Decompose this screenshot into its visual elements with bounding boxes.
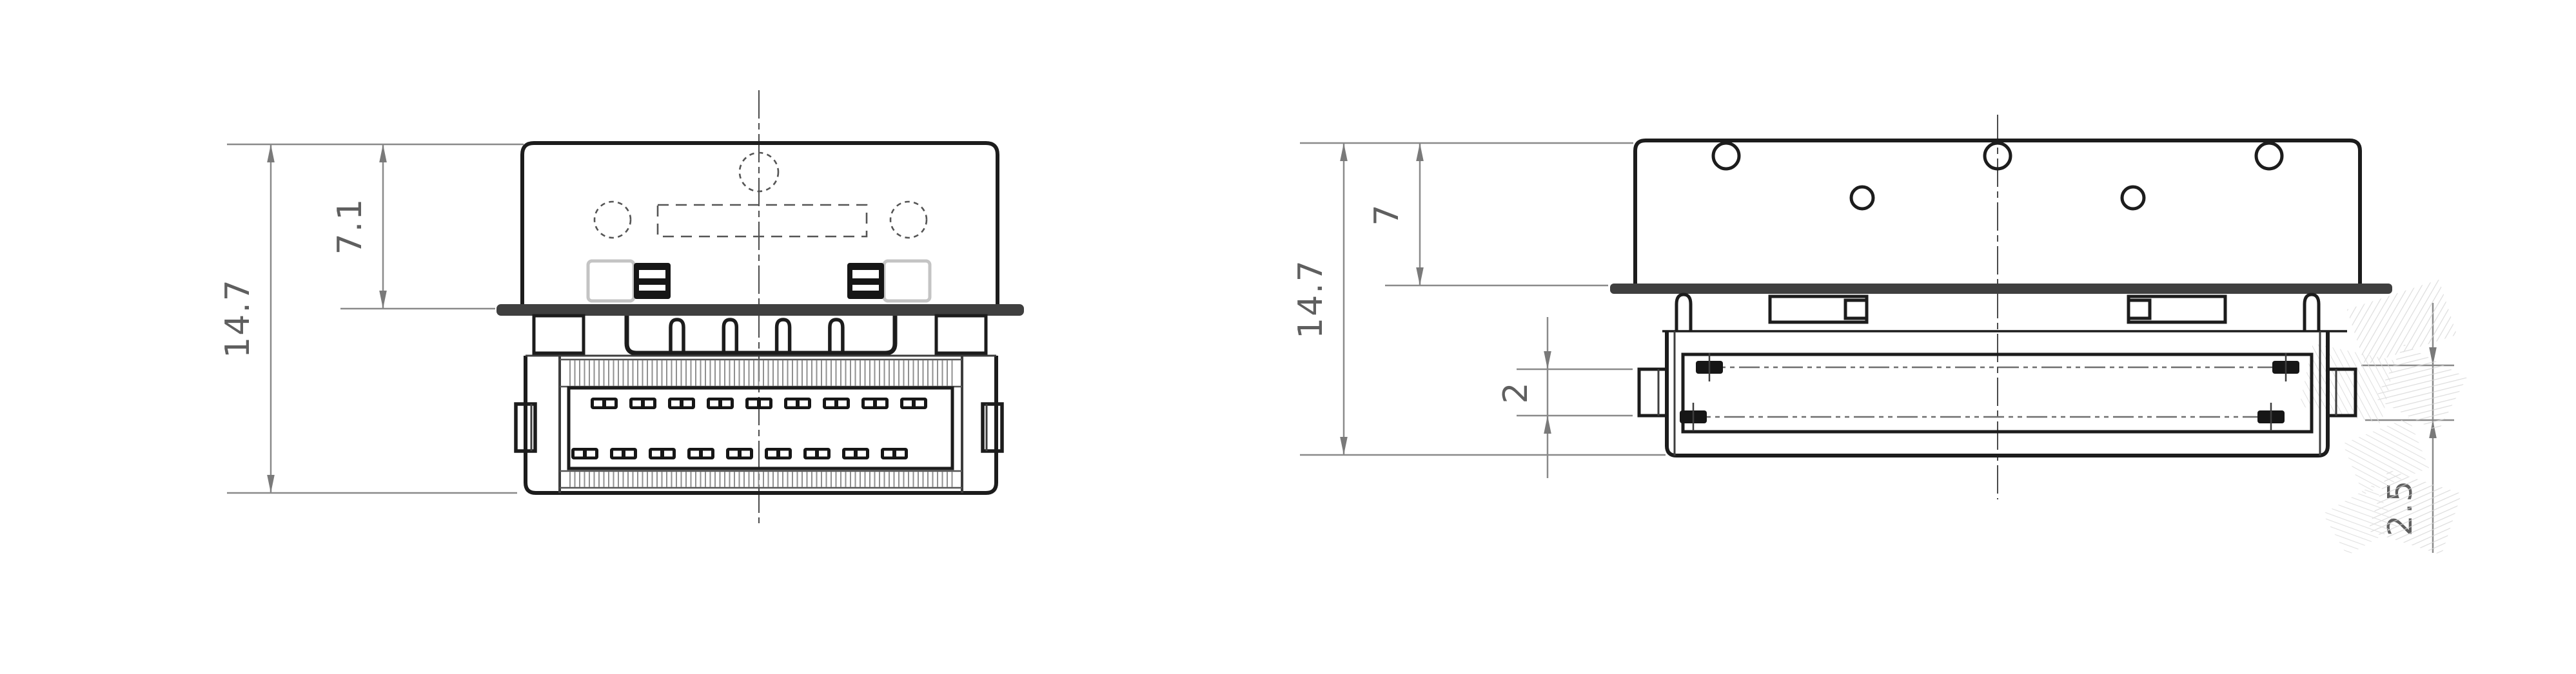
front-hatch-band-top (560, 360, 962, 387)
dimension-arrow (1416, 143, 1424, 161)
contact-pad-slot (587, 451, 595, 457)
contact-pad-slot (838, 401, 847, 407)
contact-pad-slot (703, 451, 711, 457)
front-flange-bar (497, 304, 1024, 316)
contact-pad-slot (652, 451, 660, 457)
contact-pad-slot (884, 451, 892, 457)
latch-slot (639, 285, 665, 291)
front-hatch-band-bottom (560, 471, 962, 488)
contact-pad-slot (845, 451, 854, 457)
contact-pad-slot (826, 401, 834, 407)
contact-pad-slot (819, 451, 827, 457)
contact-pad-slot (768, 451, 776, 457)
mount-hole (2122, 187, 2144, 209)
contact-pad (591, 398, 618, 409)
front-contact-pads-top-row (591, 398, 927, 409)
hidden-boss-circle-right (890, 202, 927, 238)
bottom-hook-left (1676, 294, 1691, 331)
contact-pad-slot (633, 401, 641, 407)
hidden-cavity-rect (658, 205, 867, 236)
dimension-arrow (379, 144, 387, 162)
contact-pad-slot (671, 401, 680, 407)
bottom-flange-bar (1610, 284, 2392, 294)
hidden-boss-circle-left (595, 202, 631, 238)
contact-pad-slot (903, 401, 912, 407)
dimension-arrow (267, 475, 275, 493)
bottom-solder-tab-left (1639, 369, 1667, 416)
contact-pad-slot (749, 401, 757, 407)
bottom-hook-right (2305, 294, 2319, 331)
contact-pad-slot (742, 451, 750, 457)
latch-contact (847, 263, 884, 299)
bottom-dim-overall-label: 14.7 (1292, 259, 1330, 339)
contact-pad-slot (683, 401, 692, 407)
front-latch-left (588, 261, 671, 301)
contact-pad-slot (761, 401, 769, 407)
contact-pad (629, 398, 656, 409)
front-contact-pads-bottom-row (571, 448, 908, 459)
front-dim-overall-label: 14.7 (219, 278, 257, 358)
mount-hole (1851, 187, 1873, 209)
contact-pad-slot (800, 401, 808, 407)
pin-notch (777, 320, 790, 354)
pin-notch (671, 320, 683, 354)
contact-pad-slot (807, 451, 815, 457)
contact-pad-slot (613, 451, 622, 457)
contact-pad-slot (858, 451, 866, 457)
contact-pad-slot (606, 401, 615, 407)
contact-pad-slot (594, 401, 602, 407)
dimension-arrow (1544, 351, 1551, 369)
dimension-arrow (267, 144, 275, 162)
bottom-dim-tab-label: 2 (1497, 381, 1535, 403)
contact-pad (784, 398, 811, 409)
latch-slot (639, 270, 665, 278)
engineering-drawing-canvas: 14.7 7.1 (0, 0, 2576, 674)
contact-pad-slot (691, 451, 699, 457)
contact-pad (687, 448, 714, 459)
front-solder-tab-right (983, 404, 1002, 451)
dimension-arrow (1340, 437, 1348, 455)
contact-pad (823, 398, 850, 409)
contact-pad (571, 448, 598, 459)
contact-pad (649, 448, 676, 459)
watermark-hatch (2299, 280, 2467, 555)
contact-pad-slot (645, 401, 653, 407)
pin-notch (830, 320, 843, 354)
front-pin-tray (627, 316, 895, 353)
contact-pad (842, 448, 869, 459)
contact-pad (668, 398, 695, 409)
contact-pad-slot (787, 401, 796, 407)
dimension-arrow (1416, 267, 1424, 285)
contact-pad-slot (625, 451, 634, 457)
contact-pad (707, 398, 734, 409)
latch-slot (852, 270, 879, 278)
contact-pad (745, 398, 772, 409)
bottom-slot-right (2129, 296, 2225, 322)
mount-hole (2256, 143, 2282, 169)
contact-pad-slot (865, 401, 873, 407)
dimension-arrow (1544, 416, 1551, 434)
contact-pad-slot (877, 401, 885, 407)
contact-pad-slot (729, 451, 738, 457)
contact-pad-slot (664, 451, 673, 457)
bottom-dim-upper-label: 7 (1368, 203, 1406, 226)
front-pin-notches (671, 320, 843, 354)
front-view: 14.7 7.1 (219, 90, 1024, 523)
contact-pad-slot (722, 401, 731, 407)
contact-pad (610, 448, 637, 459)
contact-pad-slot (780, 451, 789, 457)
contact-pad (765, 448, 792, 459)
front-view-dimensions: 14.7 7.1 (219, 144, 524, 493)
pin-notch (723, 320, 736, 354)
contact-pad (861, 398, 889, 409)
latch-housing (884, 261, 930, 301)
front-dim-upper-label: 7.1 (331, 198, 369, 255)
bottom-view-dimensions: 14.7 7 2 2.5 (1292, 143, 2454, 553)
contact-pad (726, 448, 753, 459)
latch-contact (634, 263, 671, 299)
bottom-view: 14.7 7 2 2.5 (1292, 115, 2467, 555)
contact-pad-slot (916, 401, 924, 407)
bottom-contact-pads (1680, 353, 2299, 431)
front-latch-right (847, 261, 930, 301)
bottom-slot-left (1770, 296, 1867, 322)
contact-pad-slot (710, 401, 718, 407)
front-lower-body (526, 356, 996, 493)
latch-housing (588, 261, 634, 301)
latch-slot (852, 285, 879, 291)
dimension-arrow (379, 291, 387, 309)
contact-pad (881, 448, 908, 459)
contact-pad (900, 398, 927, 409)
contact-pad-slot (896, 451, 905, 457)
front-end-block-left (534, 316, 584, 353)
dimension-arrow (1340, 143, 1348, 161)
contact-pad (803, 448, 831, 459)
contact-pad-slot (575, 451, 583, 457)
mount-hole (1713, 143, 1739, 169)
front-end-block-right (936, 316, 986, 353)
